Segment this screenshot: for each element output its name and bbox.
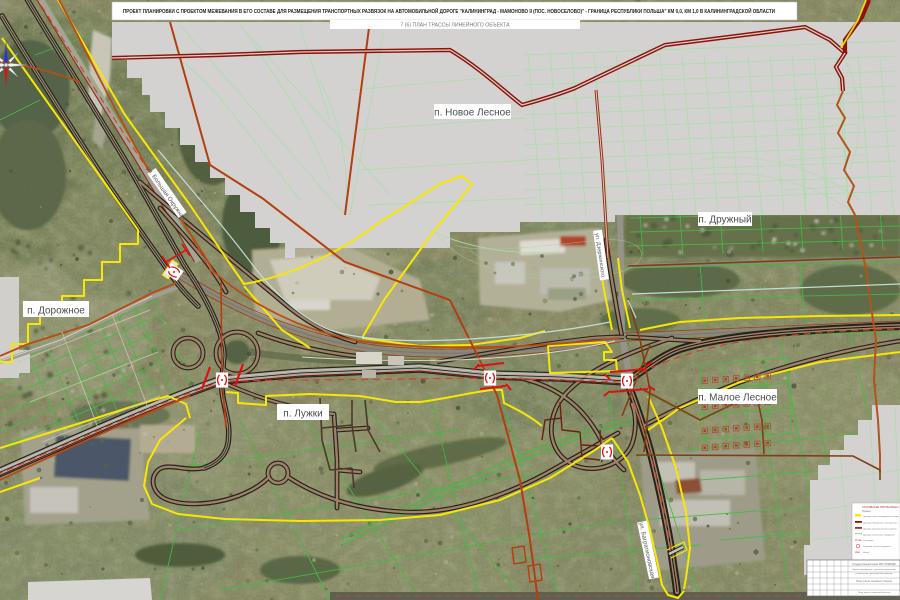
svg-text:УСЛОВНЫЕ ОБОЗНАЧЕН: УСЛОВНЫЕ ОБОЗНАЧЕН [862,505,898,509]
svg-text:План трассы линейного объекта: План трассы линейного объекта [856,580,893,583]
svg-text:Нав: Нав [855,550,860,554]
svg-text:Установка: Установка [863,540,874,542]
svg-text:размещения транспортных развяз: размещения транспортных развязок [855,573,892,575]
svg-text:Граница "Мамоново" граница Пол: Граница "Мамоново" граница Пол [863,523,898,525]
svg-text:Пример:: Пример: [862,510,872,513]
svg-text:Граница муниципального района: Граница муниципального района [863,528,897,531]
svg-text:Развязки в разных уровнях: Развязки в разных уровнях [863,546,891,548]
svg-text:Граница земельных переделов: Граница земельных переделов [863,535,895,537]
svg-text:п. Дорожное: п. Дорожное [27,306,85,317]
svg-text:Граница зоны планируемого разм: Граница зоны планируемого разме [863,516,899,518]
svg-text:ПРОЕКТ ПЛАНИРОВКИ С ПРОЕКТОМ М: ПРОЕКТ ПЛАНИРОВКИ С ПРОЕКТОМ МЕЖЕВАНИЯ В… [123,7,775,15]
svg-text:Устан: Устан [855,538,862,542]
svg-text:Государственный заказ МКУ ПОДР: Государственный заказ МКУ ПОДРЯДЧ [852,563,896,566]
svg-text:План трассы линейной области: План трассы линейной области [858,591,891,594]
svg-text:п. Малое Лесное: п. Малое Лесное [698,393,777,404]
svg-text:7 (6) ПЛАН ТРАССЫ ЛИНЕЙНОГО ОБ: 7 (6) ПЛАН ТРАССЫ ЛИНЕЙНОГО ОБЪЕКТА [400,21,510,29]
svg-text:п. Лужки: п. Лужки [283,409,322,420]
svg-text:п. Дружный: п. Дружный [698,215,751,226]
svg-text:Проект планировки с проектом м: Проект планировки с проектом межевания [852,569,896,571]
svg-text:п. Новое Лесное: п. Новое Лесное [434,108,511,119]
svg-text:Навес: Навес [863,552,870,554]
